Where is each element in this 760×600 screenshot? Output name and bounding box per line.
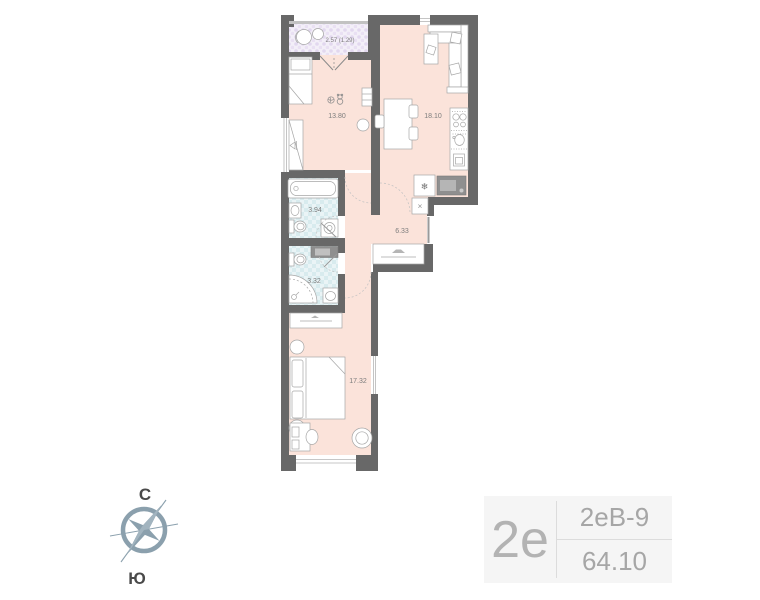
compass: С Ю	[110, 485, 178, 588]
bedside-pouf-top	[290, 340, 304, 354]
balcony-railing	[289, 21, 368, 24]
plan-code-label: 2еВ-9	[557, 496, 672, 539]
bed-small-pillow	[291, 59, 310, 70]
compass-south-label: Ю	[128, 569, 146, 588]
kitchen-area-label: 18.10	[424, 113, 442, 120]
panel-right-column: 2еВ-9 64.10	[557, 496, 672, 583]
bottom-wall-left	[281, 455, 296, 471]
shelf-unit	[362, 88, 372, 106]
shower-bottom-wall	[281, 305, 345, 313]
vanity-table	[290, 313, 342, 328]
hall-bottom-wall	[373, 264, 433, 272]
kitchen-window	[420, 15, 430, 25]
bedroom-area-label: 17.32	[349, 378, 367, 385]
living-room-area-label: 13.80	[328, 113, 346, 120]
balcony-bottom-wall-right	[348, 52, 368, 60]
total-area-label: 64.10	[557, 540, 672, 583]
bathroom-top-wall	[281, 170, 345, 178]
sofa-armrest	[447, 87, 468, 93]
dining-table	[384, 99, 412, 149]
bathroom-right-wall	[338, 178, 345, 216]
sofa-pillow-1	[450, 32, 462, 44]
living-room-window	[281, 118, 289, 172]
counter-inset	[440, 180, 456, 191]
bed-pillow-1	[292, 360, 303, 387]
washing-machine	[321, 219, 338, 237]
corridor-floor	[345, 244, 371, 313]
bedroom-right-wall-upper	[371, 272, 378, 356]
entrance-door-leaf	[428, 217, 430, 243]
armchair	[352, 428, 372, 448]
plan-type-label: 2е	[484, 496, 556, 583]
bathroom-toilet-tank	[289, 220, 294, 233]
balcony-table	[297, 30, 312, 45]
balcony-area-label: 2.57 (1.29)	[325, 38, 354, 44]
shower-right-wall-top	[338, 246, 345, 253]
kitchen-bottom-wall	[428, 197, 478, 205]
desk-chair	[306, 430, 318, 445]
sofa-pillow-2	[449, 63, 461, 75]
floor-chair	[357, 119, 369, 131]
shower-toilet-tank	[289, 253, 294, 266]
hallway-area-label: 6.33	[395, 228, 409, 235]
compass-north-label: С	[139, 485, 151, 504]
hall-wardrobe	[373, 244, 424, 264]
apartment-info-panel: 2е 2еВ-9 64.10	[484, 496, 672, 583]
dining-chair	[375, 115, 384, 128]
outer-right-wall	[468, 15, 478, 205]
ventilation-shaft-icon: ✕	[417, 204, 422, 211]
bedroom-side-window	[371, 356, 378, 394]
floorplan-page: ❄ ✕	[0, 0, 760, 600]
bottom-wall-right	[356, 455, 378, 471]
bed-pillow-2	[292, 391, 303, 418]
bathroom-area-label: 3.94	[308, 207, 322, 214]
shower-area-label: 3.32	[307, 278, 321, 285]
dining-chair	[409, 127, 418, 140]
dining-chair	[409, 105, 418, 118]
top-wall-left	[378, 15, 420, 25]
bath-shower-divider-wall	[281, 238, 345, 246]
fridge-icon: ❄	[421, 182, 429, 192]
balcony-chair	[313, 29, 324, 40]
